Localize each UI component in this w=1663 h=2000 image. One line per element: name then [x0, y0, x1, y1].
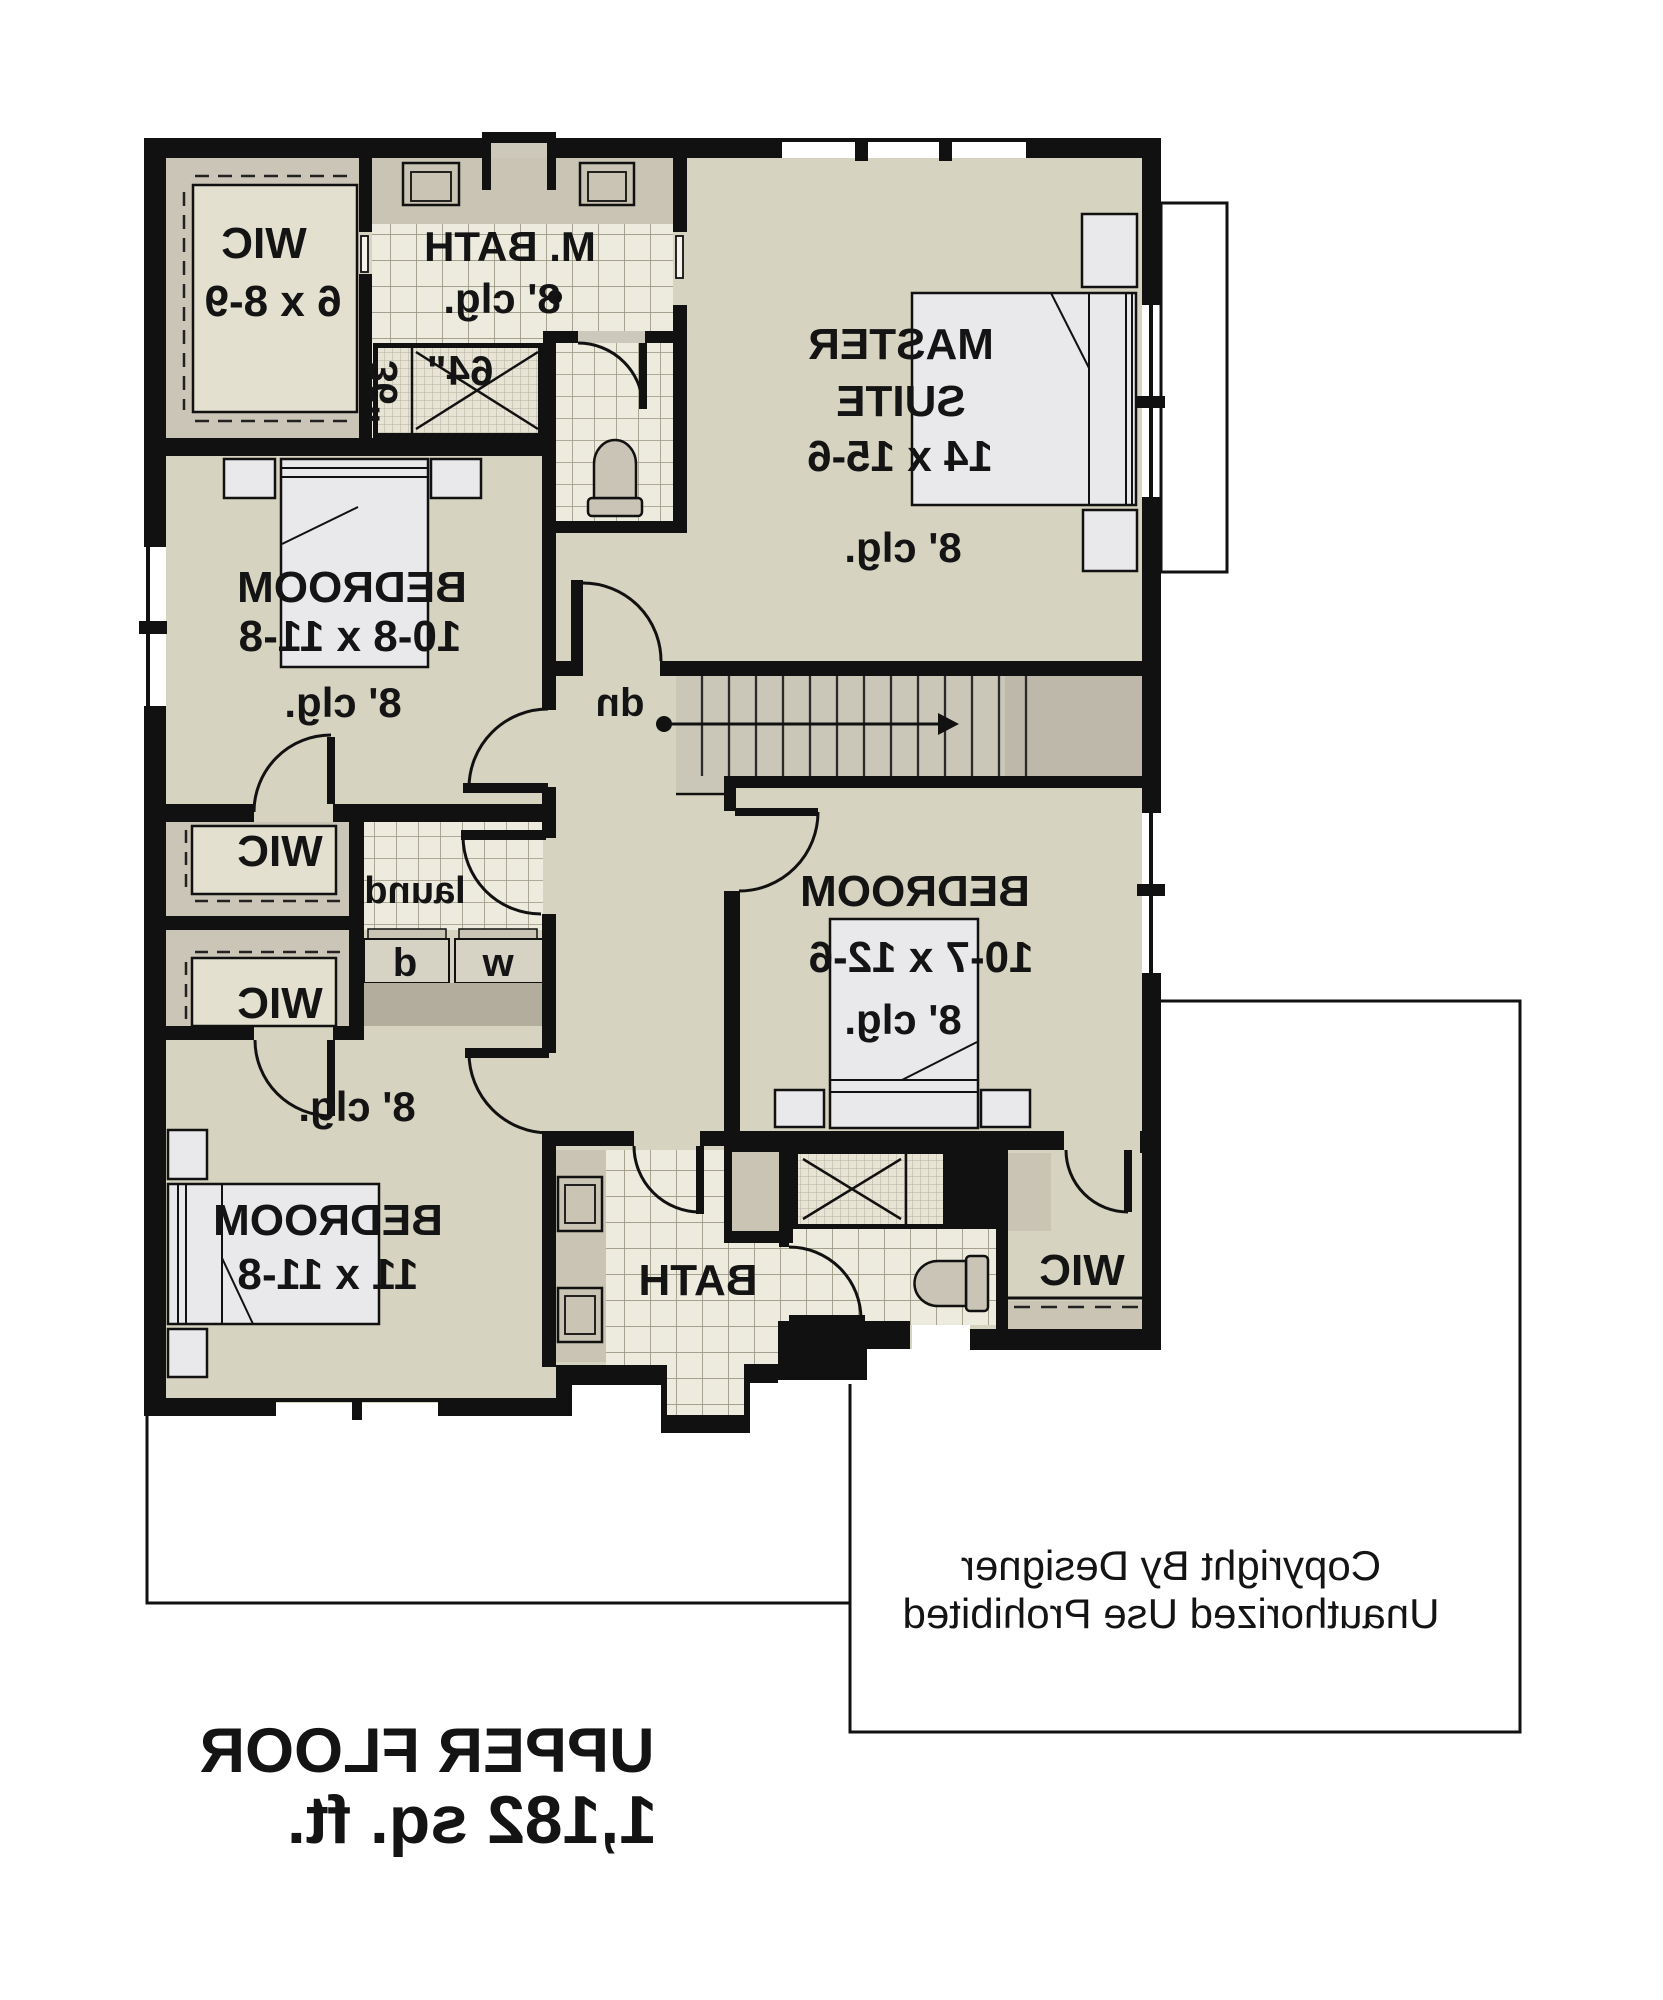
- svg-text:10-8 x 11-8: 10-8 x 11-8: [239, 612, 462, 661]
- svg-text:36": 36": [362, 360, 406, 423]
- svg-text:WIC: WIC: [221, 219, 307, 268]
- svg-text:SUITE: SUITE: [836, 377, 966, 426]
- svg-text:Unauthorized Use Prohibited: Unauthorized Use Prohibited: [903, 1590, 1440, 1637]
- svg-text:MASTER: MASTER: [808, 320, 994, 369]
- svg-text:WIC: WIC: [237, 827, 323, 876]
- svg-text:Copyright By Designer: Copyright By Designer: [961, 1542, 1381, 1589]
- svg-text:8' clg.: 8' clg.: [844, 996, 961, 1043]
- svg-text:M. BATH: M. BATH: [424, 223, 596, 270]
- svg-text:14 x 15-6: 14 x 15-6: [807, 432, 993, 481]
- svg-text:w: w: [482, 941, 515, 985]
- svg-text:WIC: WIC: [237, 979, 323, 1028]
- svg-text:dn: dn: [596, 681, 645, 725]
- svg-text:laund: laund: [364, 870, 465, 912]
- svg-text:8' clg.: 8' clg.: [284, 679, 401, 726]
- svg-text:BEDROOM: BEDROOM: [800, 867, 1030, 916]
- svg-text:8' clg.: 8' clg.: [443, 275, 560, 322]
- svg-text:10-7 x 12-6: 10-7 x 12-6: [808, 933, 1033, 982]
- svg-text:1,182 sq. ft.: 1,182 sq. ft.: [287, 1782, 657, 1858]
- svg-text:BEDROOM: BEDROOM: [237, 563, 467, 612]
- svg-text:WIC: WIC: [1039, 1246, 1125, 1295]
- svg-text:64": 64": [427, 347, 494, 394]
- svg-text:d: d: [393, 941, 417, 985]
- svg-text:11 x 11-8: 11 x 11-8: [237, 1250, 418, 1299]
- svg-text:BEDROOM: BEDROOM: [213, 1196, 443, 1245]
- svg-text:BATH: BATH: [639, 1256, 758, 1305]
- svg-text:8' clg.: 8' clg.: [844, 524, 961, 571]
- svg-text:8' clg.: 8' clg.: [298, 1083, 415, 1130]
- svg-text:UPPER FLOOR: UPPER FLOOR: [199, 1716, 654, 1786]
- svg-text:6 x 8-9: 6 x 8-9: [205, 277, 342, 326]
